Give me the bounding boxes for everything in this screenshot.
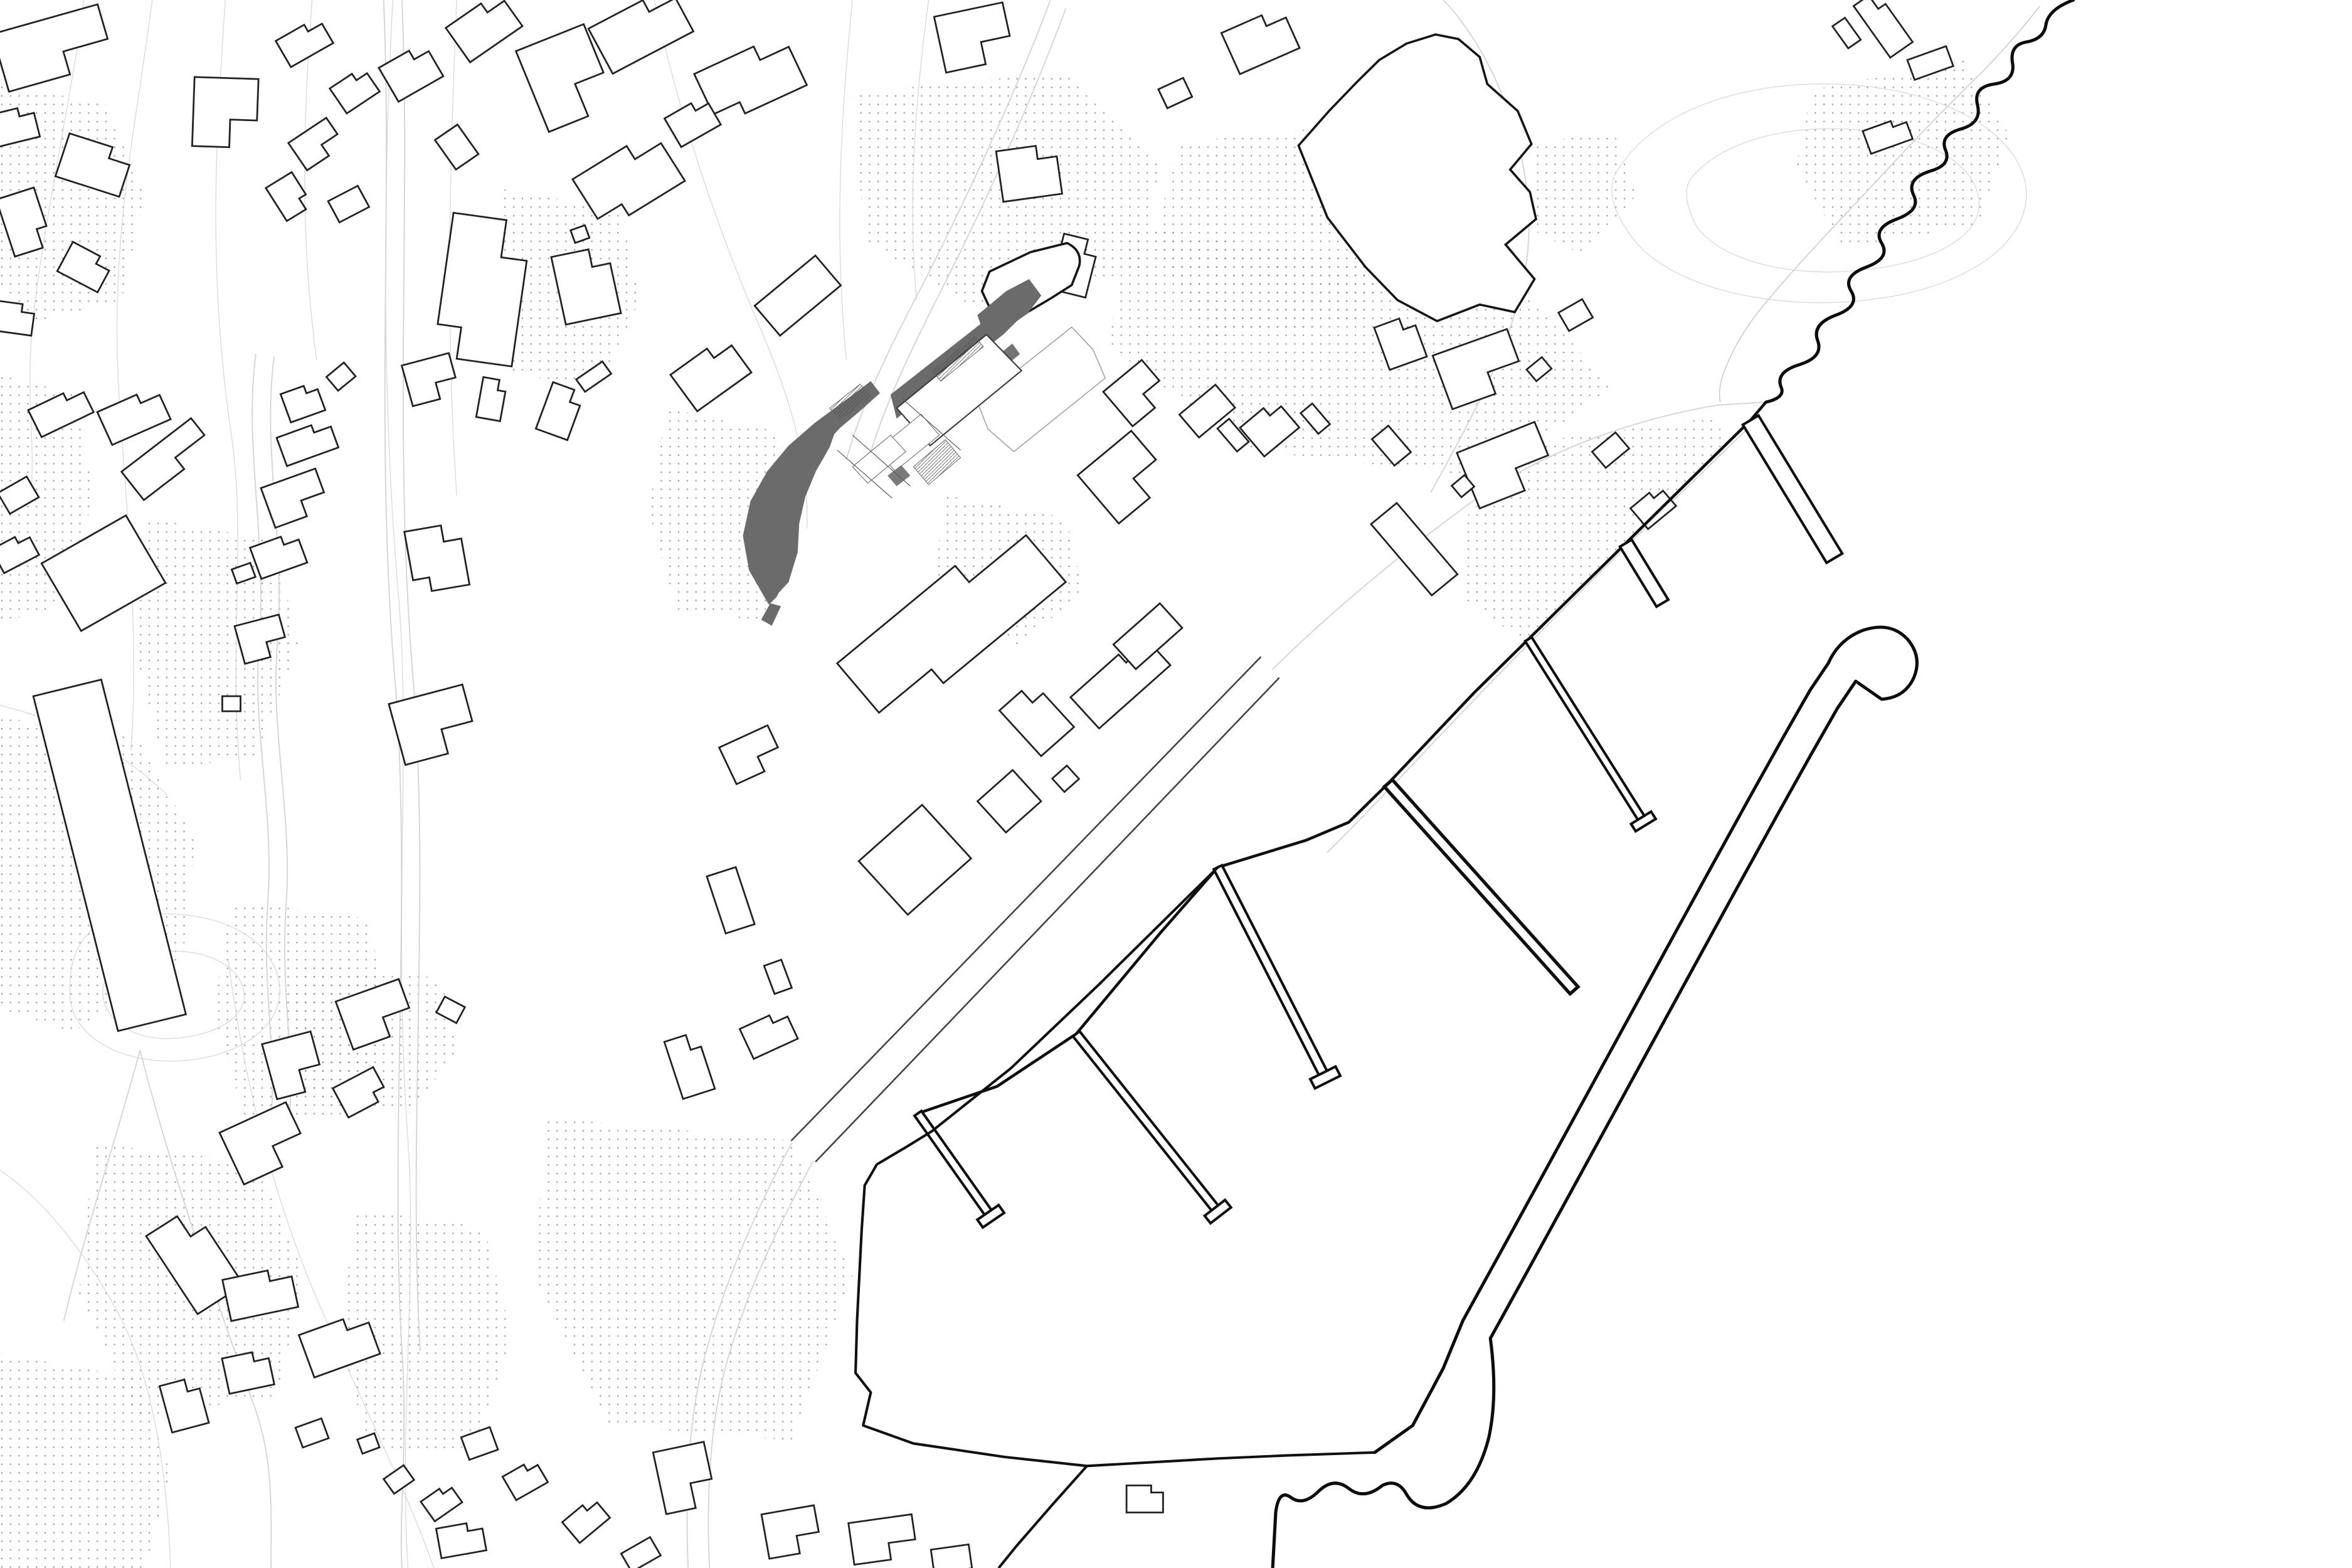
building-footprint [289, 118, 337, 171]
building-footprint [707, 867, 755, 934]
marina-pier [1384, 780, 1578, 993]
building-footprint [621, 1537, 660, 1568]
building-footprint [476, 377, 506, 421]
building-footprint [664, 103, 721, 147]
building-footprint [277, 425, 339, 466]
stipple-area [1796, 60, 2010, 248]
building-footprint [719, 725, 778, 784]
building-footprint [739, 1015, 798, 1059]
building-footprint [402, 353, 456, 406]
building-footprint [436, 1523, 486, 1559]
building-footprint [421, 1488, 462, 1522]
building-footprint [330, 73, 380, 114]
building-footprint [1221, 15, 1300, 74]
building-footprint [670, 346, 751, 411]
building-footprint [764, 960, 792, 994]
building-footprint [859, 805, 971, 914]
building-footprint [389, 684, 472, 765]
stipple-area [533, 1118, 853, 1440]
building-footprint [502, 1465, 548, 1500]
building-footprint [931, 1544, 972, 1568]
building-footprint [664, 1035, 715, 1099]
building-footprint [1071, 642, 1170, 729]
marina-pier [914, 1111, 1004, 1227]
building-footprint [295, 1418, 329, 1447]
contour-line [840, 0, 852, 360]
building-footprint [261, 469, 324, 527]
marina-pier [1214, 866, 1340, 1089]
building-footprint [384, 1465, 415, 1493]
building-footprint [1052, 766, 1079, 792]
building-footprint [276, 24, 334, 67]
building-footprint [1078, 431, 1156, 524]
marina-pier [1073, 1031, 1231, 1223]
building-footprint [280, 386, 325, 422]
building-footprint [1103, 360, 1160, 426]
building-footprint [435, 125, 478, 170]
building-footprint [934, 3, 1010, 73]
building-footprint [536, 382, 580, 440]
building-footprint [266, 172, 306, 221]
building-footprint [755, 255, 840, 336]
building-footprint [1853, 0, 1912, 58]
building-footprint [1833, 18, 1861, 48]
building-footprint [849, 1514, 916, 1564]
road-edge [402, 0, 420, 1350]
stipple-area [1522, 132, 1636, 255]
building-footprint [516, 24, 604, 132]
breakwater-outline [1273, 627, 1917, 1568]
building-footprint [694, 46, 807, 114]
marina-pier [1525, 637, 1656, 831]
building-footprint [653, 1442, 711, 1514]
building-footprint [977, 770, 1041, 833]
site-plan-svg [0, 0, 2352, 1568]
marina-pier [1620, 539, 1668, 607]
building-footprint [192, 77, 258, 147]
building-footprint [588, 0, 693, 73]
building-footprint [1371, 503, 1458, 595]
building-footprint [999, 691, 1074, 756]
building-footprint [222, 696, 240, 711]
building-footprint [562, 1502, 610, 1543]
building-footprint [405, 526, 470, 591]
harbor-basin-edge [856, 867, 1375, 1466]
building-footprint [1126, 1485, 1163, 1512]
building-footprint [328, 186, 369, 222]
building-footprint [1158, 78, 1192, 108]
breakwater-outline [1375, 1320, 1463, 1453]
site-plan-canvas [0, 0, 2352, 1568]
building-footprint [1559, 299, 1593, 331]
building-footprint [97, 395, 171, 445]
harbor-basin-edge [999, 1466, 1087, 1568]
building-footprint [0, 4, 108, 92]
building-footprint [761, 1505, 818, 1559]
building-footprint [446, 1, 522, 62]
building-footprint [326, 363, 356, 391]
marina-pier [1743, 415, 1842, 563]
